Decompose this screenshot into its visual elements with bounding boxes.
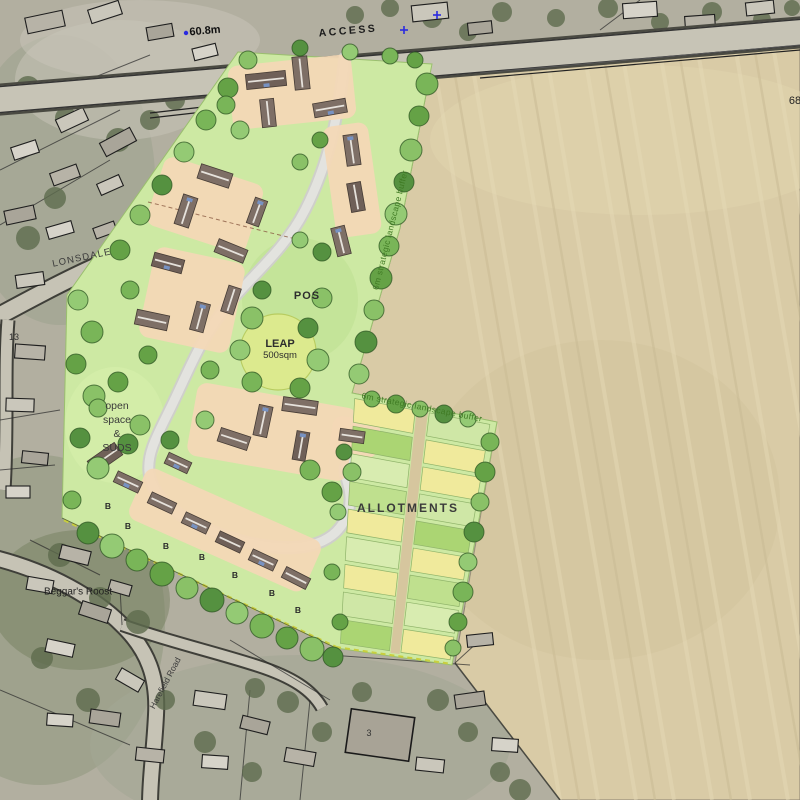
masterplan-aerial-map: 60.8m ACCESS 68 LONSDALE POS LEAP 500sqm… bbox=[0, 0, 800, 800]
aerial-plan-graphic bbox=[0, 0, 800, 800]
